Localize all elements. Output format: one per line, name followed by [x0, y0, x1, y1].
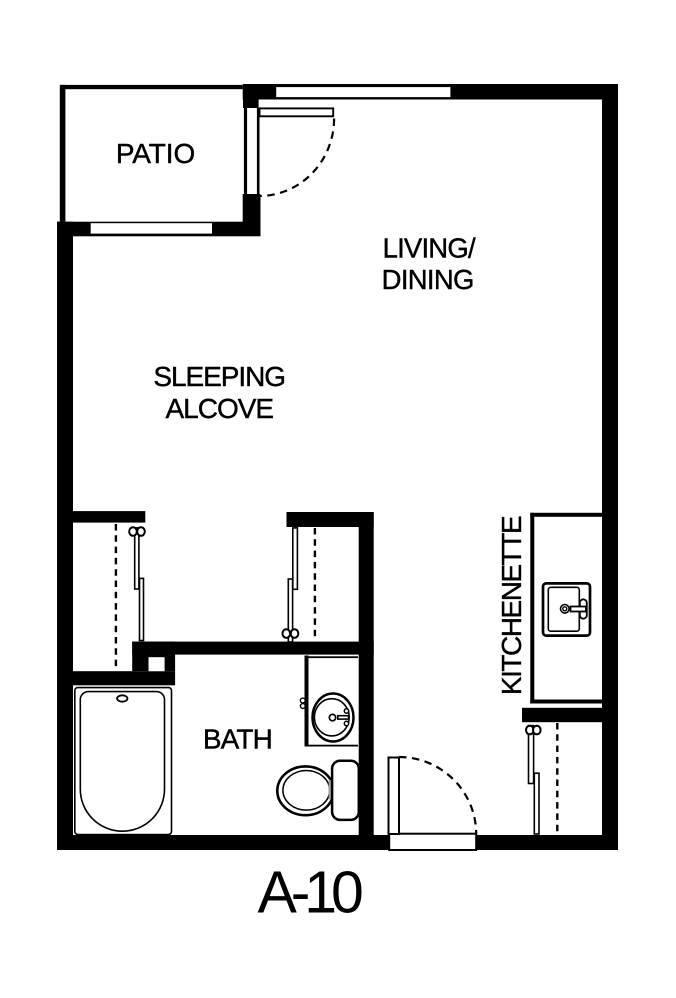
svg-text:A-10: A-10 — [257, 860, 362, 926]
svg-text:ALCOVE: ALCOVE — [165, 393, 273, 424]
svg-text:LIVING/: LIVING/ — [383, 233, 476, 264]
svg-text:DINING: DINING — [382, 264, 474, 295]
svg-text:SLEEPING: SLEEPING — [153, 361, 285, 392]
svg-text:BATH: BATH — [203, 724, 272, 755]
svg-text:PATIO: PATIO — [116, 138, 195, 169]
svg-text:KITCHENETTE: KITCHENETTE — [496, 516, 527, 695]
